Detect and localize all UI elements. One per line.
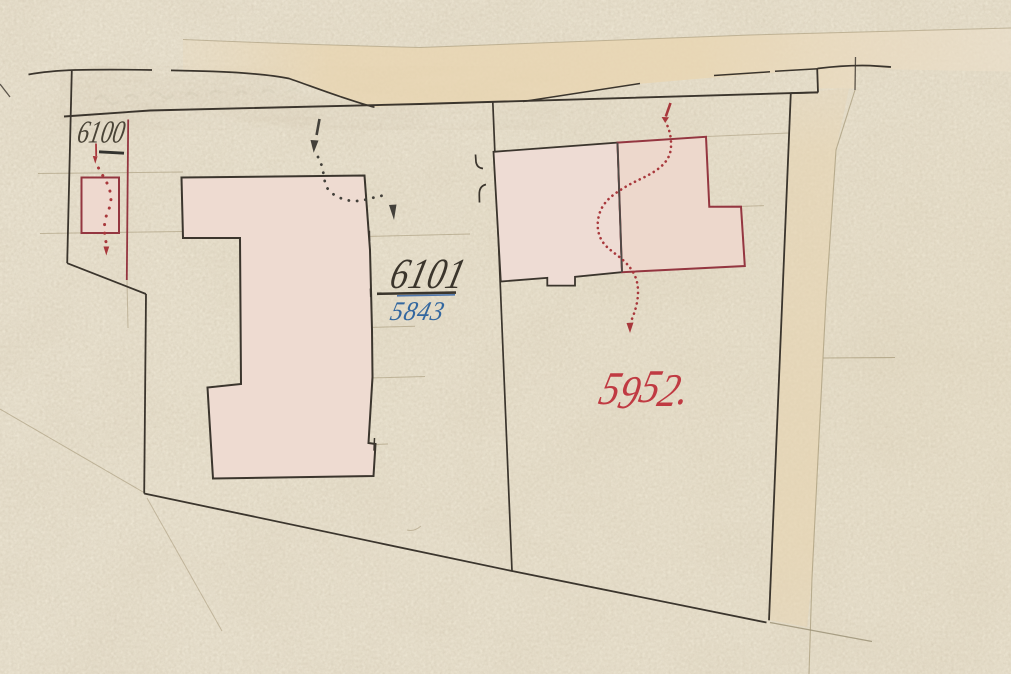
- svg-text:6101: 6101: [386, 249, 472, 297]
- svg-text:5952.: 5952.: [593, 361, 697, 419]
- svg-text:6100: 6100: [74, 115, 128, 150]
- svg-text:5843: 5843: [387, 296, 448, 326]
